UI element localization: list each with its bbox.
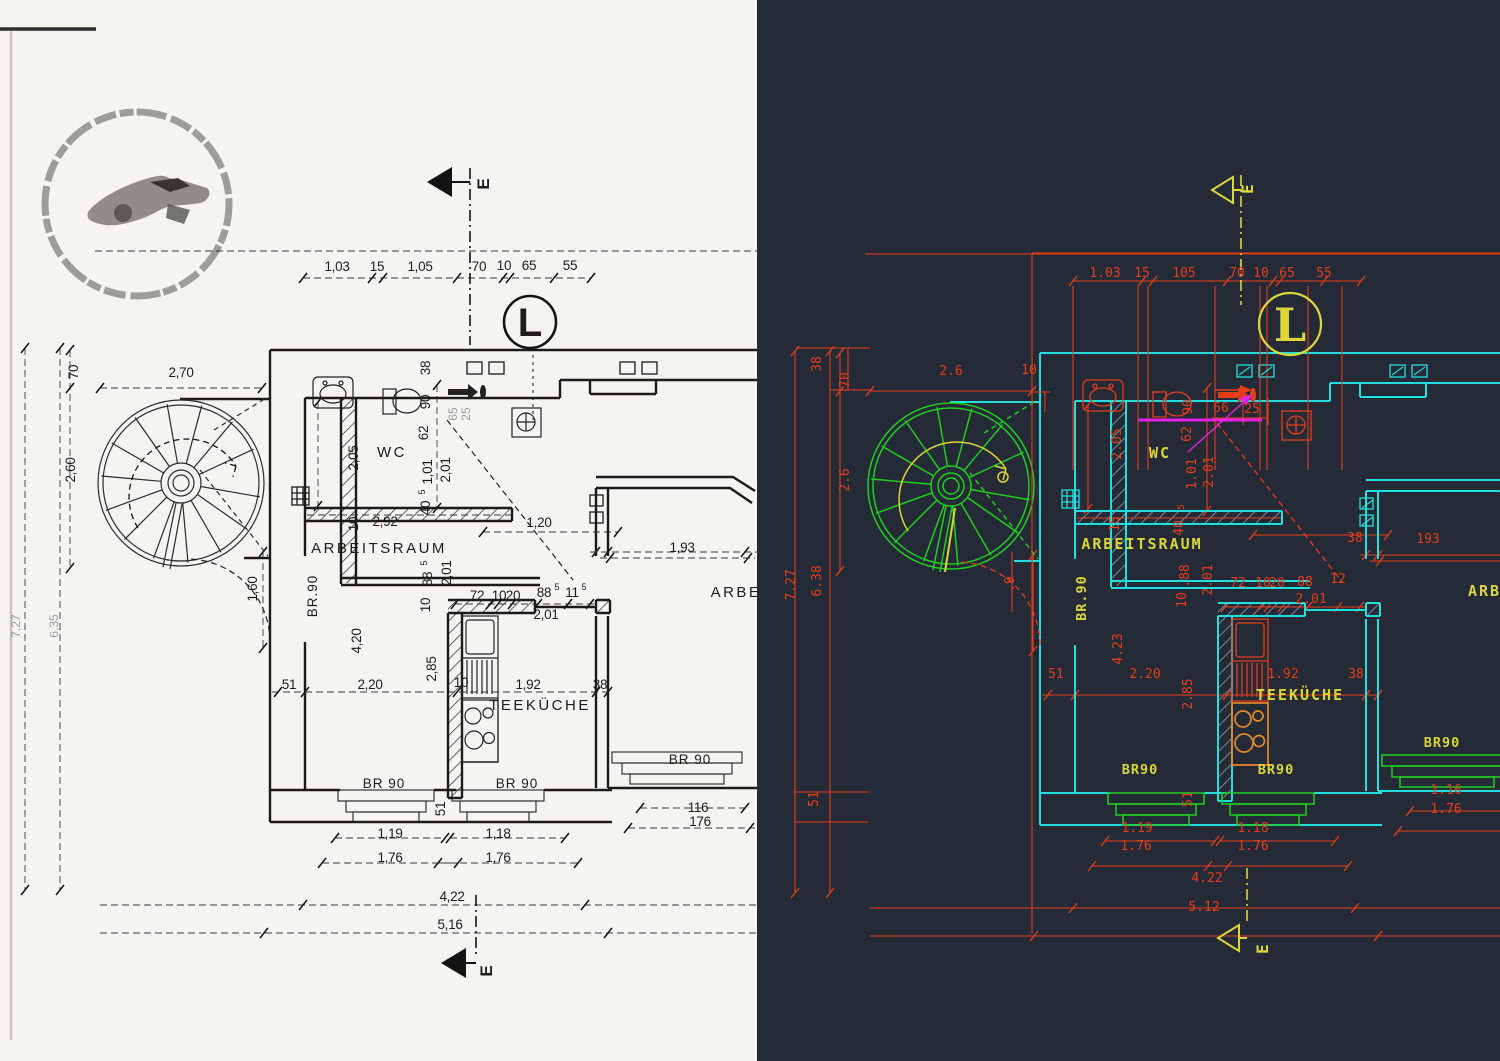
dimension-label: 38 — [1348, 667, 1364, 682]
dimension-label: 1.76 — [1430, 802, 1461, 817]
room-label: WC — [1149, 444, 1171, 462]
floor-plan-comparison: 1,03151,05701065552,7038702,602,05906265… — [0, 0, 1500, 1061]
dimension-label: 2,60 — [63, 457, 78, 482]
dimension-label: 1,03 — [324, 259, 349, 274]
dimension-label: 5 — [1177, 504, 1187, 509]
dimension-label: .9 — [1003, 576, 1018, 592]
room-label: TEEKÜCHE — [1256, 685, 1344, 704]
dimension-label: 4.22 — [1191, 871, 1222, 886]
dimension-label: 2.01 — [1295, 592, 1326, 607]
dimension-label: 51 — [1048, 667, 1064, 682]
dimension-label: 2,01 — [533, 607, 558, 622]
door-width-label: BR 90 — [669, 752, 712, 767]
dimension-label: 10 — [1175, 592, 1190, 608]
dimension-label: 25 — [1244, 402, 1260, 417]
dimension-label: 1.76 — [1120, 839, 1151, 854]
dimension-label: 4.23 — [1111, 633, 1126, 664]
dimension-label: 10 — [1253, 266, 1269, 281]
dimension-label: 51 — [1181, 791, 1196, 807]
room-label: ARBEITSRAUM — [1081, 535, 1202, 553]
cad-panel: 1.0315105701065552.61038702.67.276.382.0… — [757, 0, 1500, 1061]
dimension-label: 1,76 — [377, 850, 402, 865]
dimension-label: 4,22 — [439, 889, 464, 904]
door-width-label: BR.90 — [1074, 575, 1090, 621]
dimension-label: 2,92 — [372, 514, 397, 529]
dimension-label: 51 — [433, 802, 448, 816]
dimension-label: 88 — [1297, 575, 1313, 590]
dimension-label: 1,60 — [245, 576, 260, 601]
dimension-label: 10 — [497, 258, 511, 273]
dimension-label: 2.85 — [1181, 678, 1196, 709]
dimension-label: 10 — [492, 588, 506, 603]
dimension-label: 62 — [416, 426, 431, 440]
room-label: ARBE — [1468, 582, 1500, 600]
room-label: TEEKÜCHE — [489, 696, 591, 714]
scan-panel: 1,03151,05701065552,7038702,602,05906265… — [0, 0, 757, 1061]
dimension-label: 10 — [346, 517, 361, 531]
cad-background — [757, 0, 1500, 1061]
dimension-label: 116 — [688, 800, 709, 815]
dimension-label: 1,19 — [377, 826, 402, 841]
dimension-label: 51 — [807, 791, 822, 807]
dimension-label: 90 — [418, 395, 433, 409]
dimension-label: 12 — [1330, 572, 1346, 587]
dimension-label: 15 — [1108, 516, 1123, 532]
dimension-label: 62 — [1180, 426, 1195, 442]
dimension-label: 176 — [689, 814, 711, 829]
dimension-label: 2.6 — [939, 364, 962, 379]
section-letter: E — [1238, 184, 1257, 194]
dimension-label: 6.38 — [810, 565, 825, 596]
dimension-label: 2.20 — [1129, 667, 1160, 682]
dimension-label: 65 — [1279, 266, 1295, 281]
dimension-label: 10 — [1021, 363, 1037, 378]
dimension-label: 10 — [454, 675, 468, 690]
dimension-label: 20 — [506, 588, 520, 603]
dimension-label: 2.6 — [838, 468, 853, 491]
dimension-label: 40 — [418, 501, 433, 515]
dimension-label: 65 — [522, 258, 536, 273]
dimension-label: 105 — [1172, 266, 1195, 281]
dimension-label: 1,01 — [420, 459, 435, 484]
dimension-label: 88 — [537, 585, 551, 600]
dimension-label: 20 — [1269, 576, 1285, 591]
dimension-label: 38 — [810, 356, 825, 372]
dimension-label: 5,16 — [437, 917, 462, 932]
door-width-label: BR 90 — [363, 776, 406, 791]
dimension-label: 1.92 — [1267, 667, 1298, 682]
dimension-label: 1,05 — [407, 259, 432, 274]
dimension-label: 2,01 — [439, 560, 454, 585]
dimension-label: 70 — [1229, 266, 1245, 281]
door-width-label: BR90 — [1424, 735, 1461, 751]
dimension-label: 4,20 — [349, 628, 364, 653]
door-width-label: BR 90 — [496, 776, 539, 791]
detail-letter: L — [1274, 298, 1306, 352]
dimension-label: 2,20 — [357, 677, 382, 692]
dimension-label: 11 — [565, 585, 578, 600]
dimension-label: 55 — [563, 258, 577, 273]
dimension-label: 2,05 — [346, 445, 361, 470]
dimension-label: 5 — [417, 489, 427, 494]
room-label: ARBE — [711, 584, 757, 601]
dimension-label: 2.01 — [1201, 564, 1216, 595]
dimension-label: 2.01 — [1202, 456, 1217, 487]
dimension-label: 5.12 — [1188, 900, 1219, 915]
dimension-label: 7.27 — [784, 569, 799, 600]
dimension-label: 7,27 — [9, 614, 23, 638]
dimension-label: 1.01 — [1185, 458, 1200, 489]
door-width-label: BR90 — [1122, 762, 1159, 778]
dimension-label: 70 — [472, 259, 486, 274]
dimension-label: 25 — [459, 407, 473, 421]
dimension-label: 1.16 — [1430, 783, 1461, 798]
dimension-label: 88 — [420, 572, 435, 586]
dimension-label: 72 — [1230, 576, 1246, 591]
dimension-label: 66 — [1213, 401, 1229, 416]
dimension-label: 1.03 — [1089, 266, 1120, 281]
dimension-label: 65 — [446, 407, 460, 421]
dimension-label: 70 — [838, 372, 853, 388]
section-letter: E — [1253, 944, 1272, 954]
dimension-label: 70 — [66, 365, 81, 379]
dimension-label: 5 — [419, 560, 429, 565]
dimension-label: 10 — [418, 598, 433, 612]
dimension-label: 2,85 — [424, 656, 439, 681]
dimension-label: 1,93 — [669, 540, 694, 555]
detail-letter: L — [518, 301, 542, 345]
dimension-label: 40 — [1172, 520, 1187, 536]
dimension-label: 5 — [554, 582, 559, 592]
room-label: ARBEITSRAUM — [311, 540, 447, 557]
dimension-label: 1.76 — [1237, 839, 1268, 854]
dimension-label: 1.18 — [1237, 821, 1268, 836]
door-width-label: BR.90 — [305, 575, 320, 618]
dimension-label: 72 — [470, 588, 484, 603]
dimension-label: 1,18 — [485, 826, 510, 841]
dimension-label: 38 — [1347, 531, 1363, 546]
dimension-label: 15 — [370, 259, 384, 274]
dimension-label: 2,70 — [168, 365, 193, 380]
section-letter: E — [474, 178, 493, 189]
dimension-label: 2,01 — [438, 457, 453, 482]
dimension-label: 15 — [1134, 266, 1150, 281]
section-letter: E — [477, 965, 496, 976]
door-width-label: BR90 — [1258, 762, 1295, 778]
dimension-label: 2.05 — [1110, 428, 1125, 459]
room-label: WC — [377, 444, 407, 461]
dimension-label: 6,35 — [47, 614, 61, 638]
dimension-label: 51 — [282, 677, 296, 692]
dimension-label: 1.19 — [1121, 821, 1152, 836]
dimension-label: 193 — [1416, 532, 1439, 547]
dimension-label: 55 — [1316, 266, 1332, 281]
dimension-label: 5 — [581, 582, 586, 592]
dimension-label: 90 — [1181, 399, 1196, 415]
dimension-label: 38 — [418, 361, 433, 375]
dimension-label: 1,92 — [515, 677, 540, 692]
dimension-label: 1,20 — [526, 515, 551, 530]
dimension-label: 1,76 — [485, 850, 510, 865]
dimension-label: 38 — [593, 677, 607, 692]
dimension-label: .88 — [1178, 564, 1193, 587]
